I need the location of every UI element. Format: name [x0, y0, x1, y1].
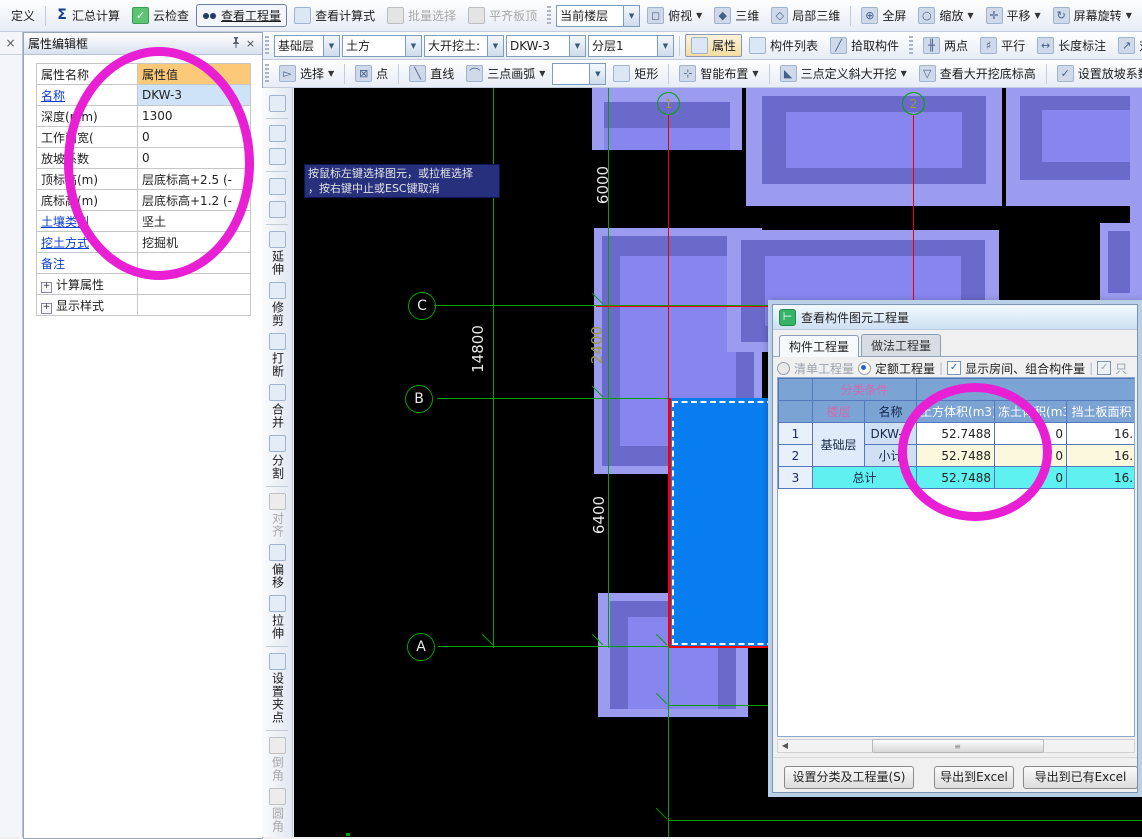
set-classification-button[interactable]: 设置分类及工程量(S): [784, 766, 914, 789]
smart-layout-button[interactable]: ⊹智能布置▼: [674, 63, 763, 84]
split-button[interactable]: 分割: [269, 432, 286, 483]
formula-icon: [294, 7, 311, 24]
red-axis-line-horizontal: [596, 306, 768, 307]
align-slab-icon: [468, 7, 485, 24]
list-icon: [749, 37, 766, 54]
pan-button[interactable]: ✛平移▼: [981, 5, 1046, 26]
rect-button[interactable]: 矩形: [608, 63, 663, 84]
dialog-frame: ⊢ 查看构件图元工程量 构件工程量 做法工程量 清单工程量 定额工程量 | ✓ …: [772, 304, 1138, 793]
align-button[interactable]: 对齐: [269, 490, 286, 541]
length-dim-icon: ↔: [1037, 37, 1054, 54]
view-bottom-elev-button[interactable]: ▽查看大开挖底标高: [914, 63, 1041, 84]
property-panel-title: 属性编辑框: [28, 35, 228, 52]
grid-mark: [346, 833, 350, 836]
offset-button[interactable]: 偏移: [269, 541, 286, 592]
zoom-button[interactable]: ○缩放▼: [913, 5, 978, 26]
radio-quota-label: 定额工程量: [875, 360, 935, 377]
arc-option-combo[interactable]: ▼: [552, 63, 606, 85]
selection-hint-tooltip: 按鼠标左键选择图元，或拉框选择 ，按右键中止或ESC键取消: [304, 164, 500, 198]
divider: [266, 646, 288, 647]
red-axis-line-2: [913, 114, 914, 300]
table-row[interactable]: 1 基础层 DKW-3 52.7488 0 16.: [779, 423, 1136, 445]
sum-calc-button[interactable]: Σ汇总计算: [51, 5, 125, 26]
brush-icon: [269, 95, 286, 112]
point-icon: ⊠: [355, 65, 372, 82]
toolbar-handle: [547, 6, 551, 26]
batch-select-button[interactable]: 批量选择: [382, 5, 461, 26]
chevron-down-icon[interactable]: ▼: [623, 6, 639, 26]
edit-tool-column: 延伸 修剪 打断 合并 分割 对齐 偏移 拉伸 设置夹点 倒角 圆角: [262, 88, 293, 837]
stretch-icon: [269, 595, 286, 612]
mirror-icon: [269, 148, 286, 165]
cell-subtotal-label: 小计: [865, 445, 917, 467]
trim-icon: [269, 282, 286, 299]
bottom-elev-icon: ▽: [919, 65, 936, 82]
smart-layout-icon: ⊹: [679, 65, 696, 82]
arc3-button[interactable]: ⌒三点画弧▼: [461, 63, 550, 84]
rotate-icon: ↻: [1053, 7, 1070, 24]
break-icon: [269, 333, 286, 350]
line-button[interactable]: ╲直线: [404, 63, 459, 84]
cell-frozen-volume: 0: [995, 423, 1067, 445]
pit-edge: [1130, 88, 1142, 298]
dimension-2400: 2400: [588, 326, 606, 364]
scrollbar-thumb[interactable]: ≡: [872, 739, 1044, 753]
chamfer-icon: [269, 737, 286, 754]
chevron-down-icon[interactable]: ▼: [323, 36, 339, 56]
mirror-button[interactable]: [269, 145, 286, 168]
property-table: 属性名称 属性值 名称DKW-3 深度(mm)1300 工作面宽(0 放坡系数0…: [36, 63, 251, 316]
quantity-table: 分类条件 楼层 名称 土方体积(m3) 冻土体积(m3) 挡土板面积 1 基础层…: [778, 378, 1135, 489]
cell-floor: 基础层: [813, 423, 865, 467]
quantity-table-panel: 分类条件 楼层 名称 土方体积(m3) 冻土体积(m3) 挡土板面积 1 基础层…: [777, 377, 1135, 737]
col-header-floor[interactable]: 楼层: [813, 401, 865, 423]
checkbox-show-room-label: 显示房间、组合构件量: [965, 360, 1085, 377]
divider: [266, 730, 288, 731]
property-col-header: 属性名称: [37, 64, 138, 85]
dialog-titlebar[interactable]: ⊢ 查看构件图元工程量: [773, 305, 1137, 330]
prop-slope-label: 放坡系数: [37, 148, 138, 169]
copy-icon: [269, 125, 286, 142]
cell-retaining-area: 16.: [1067, 423, 1135, 445]
close-icon[interactable]: ×: [3, 36, 18, 51]
checkbox-show-room[interactable]: ✓: [947, 361, 961, 375]
full-screen-icon: ⊕: [861, 7, 878, 24]
prop-topelev-value[interactable]: 层底标高+2.5 (-: [138, 169, 251, 190]
prop-digmode-value[interactable]: 挖掘机: [138, 232, 251, 253]
horizontal-scrollbar[interactable]: ◀ ≡: [777, 739, 1135, 753]
rect-icon: [613, 65, 630, 82]
property-editor-panel: 属性编辑框 × 属性名称 属性值 名称DKW-3 深度(mm)1300 工作面宽…: [23, 32, 263, 839]
divider: [266, 118, 288, 119]
tooltip-line2: ，按右键中止或ESC键取消: [308, 181, 496, 196]
category-combo[interactable]: 土方▼: [342, 35, 422, 57]
prop-name-label: 名称: [37, 85, 138, 106]
divider: [266, 171, 288, 172]
pit-inner: [786, 112, 962, 168]
chevron-down-icon[interactable]: ▼: [487, 36, 503, 56]
tooltip-line1: 按鼠标左键选择图元，或拉框选择: [308, 166, 496, 181]
separator: [1046, 64, 1047, 84]
prop-slope-value[interactable]: 0: [138, 148, 251, 169]
arc-icon: ⌒: [466, 65, 483, 82]
separator: [769, 64, 770, 84]
top-view-button[interactable]: ◻俯视▼: [642, 5, 707, 26]
prop-digmode-label: 挖土方式: [37, 232, 138, 253]
cell-earth-volume: 52.7488: [917, 423, 995, 445]
prop-depth-label: 深度(mm): [37, 106, 138, 127]
col-header-v2[interactable]: 冻土体积(m3): [995, 401, 1067, 423]
parallel-icon: ♯: [980, 37, 997, 54]
dock-strip: ×: [0, 32, 23, 837]
cell-earth-volume: 52.7488: [917, 467, 995, 489]
fillet-icon: [269, 788, 286, 805]
col-header-name[interactable]: 名称: [865, 401, 917, 423]
row-index: 2: [779, 445, 813, 467]
type-combo[interactable]: 大开挖土:▼: [424, 35, 504, 57]
expand-icon[interactable]: +: [41, 303, 52, 314]
cloud-check-button[interactable]: ✓云检查: [127, 5, 194, 26]
copy-button[interactable]: [269, 122, 286, 145]
separator: [850, 6, 851, 26]
rotate-button[interactable]: [269, 198, 286, 221]
dialog-button-row: 设置分类及工程量(S) 导出到Excel 导出到已有Excel: [773, 757, 1137, 796]
element-toolbar: 基础层▼ 土方▼ 大开挖土:▼ DKW-3▼ 分层1▼ 属性 构件列表 ╱拾取构…: [262, 32, 1142, 60]
cell-retaining-area: 16.: [1067, 445, 1135, 467]
parallel-button[interactable]: ♯平行: [975, 35, 1030, 56]
grid-line-horizontal: [668, 820, 1142, 821]
grips-icon: [269, 653, 286, 670]
full-screen-button[interactable]: ⊕全屏: [856, 5, 911, 26]
current-floor-combo[interactable]: 当前楼层▼: [556, 5, 640, 27]
expand-icon[interactable]: +: [41, 282, 52, 293]
col-header-v1[interactable]: 土方体积(m3): [917, 401, 995, 423]
axis-bubble-2[interactable]: 2: [902, 92, 925, 115]
view-formula-button[interactable]: 查看计算式: [289, 5, 380, 26]
tab-method-quantity[interactable]: 做法工程量: [861, 334, 941, 356]
axis-bubble-C[interactable]: C: [408, 292, 436, 320]
radio-quota-quantity[interactable]: [858, 362, 871, 375]
pit-inner: [1042, 110, 1142, 162]
property-value-header: 属性值: [138, 64, 251, 85]
separator: [668, 64, 669, 84]
toolbar-handle: [265, 64, 269, 84]
axis-bubble-B[interactable]: B: [405, 385, 433, 413]
view-quantity-dialog: ⊢ 查看构件图元工程量 构件工程量 做法工程量 清单工程量 定额工程量 | ✓ …: [768, 300, 1142, 797]
extend-icon: [269, 231, 286, 248]
dialog-title: 查看构件图元工程量: [801, 309, 909, 326]
prop-workwidth-label: 工作面宽(: [37, 127, 138, 148]
chamfer-button[interactable]: 倒角: [269, 734, 286, 785]
attribute-icon: [691, 37, 708, 54]
axis-tick: [482, 634, 493, 645]
format-brush-button[interactable]: [269, 92, 286, 115]
group-header: 分类条件: [813, 379, 917, 401]
align-icon: [269, 493, 286, 510]
chevron-down-icon[interactable]: ▼: [569, 36, 585, 56]
row-index: 3: [779, 467, 813, 489]
offset-icon: [269, 544, 286, 561]
trim-button[interactable]: 修剪: [269, 279, 286, 330]
prop-depth-value[interactable]: 1300: [138, 106, 251, 127]
cell-name: DKW-3: [865, 423, 917, 445]
empty-cell: [138, 274, 251, 295]
set-grips-button[interactable]: 设置夹点: [269, 650, 286, 727]
floor-combo[interactable]: 基础层▼: [274, 35, 340, 57]
dialog-tabs: 构件工程量 做法工程量: [773, 330, 1137, 357]
partial-3d-icon: ◇: [771, 7, 788, 24]
cell-frozen-volume: 0: [995, 445, 1067, 467]
line-icon: ╲: [409, 65, 426, 82]
separator: [344, 64, 345, 84]
separator: [679, 36, 680, 56]
layer-combo[interactable]: 分层1▼: [588, 35, 674, 57]
magnifier-icon: ○: [918, 7, 935, 24]
cell-retaining-area: 16.: [1067, 467, 1135, 489]
group-calc-props[interactable]: +计算属性: [37, 274, 138, 295]
divider: [0, 54, 22, 55]
dimension-14800: 14800: [469, 325, 487, 373]
cube-icon: ◻: [647, 7, 664, 24]
scroll-left-icon[interactable]: ◀: [778, 740, 792, 752]
prop-workwidth-value[interactable]: 0: [138, 127, 251, 148]
prop-botelev-label: 底标高(m): [37, 190, 138, 211]
header-blank: [917, 379, 1135, 401]
separator: [45, 6, 46, 26]
chevron-down-icon[interactable]: ▼: [589, 64, 605, 84]
col-header-v3[interactable]: 挡土板面积: [1067, 401, 1135, 423]
slope-icon: ◣: [780, 65, 797, 82]
define-button[interactable]: 定义: [6, 5, 40, 26]
prop-remark-label: 备注: [37, 253, 138, 274]
batch-select-icon: [387, 7, 404, 24]
export-existing-excel-button[interactable]: 导出到已有Excel: [1023, 766, 1138, 789]
export-excel-button[interactable]: 导出到Excel: [934, 766, 1014, 789]
dropper-icon: ╱: [830, 37, 847, 54]
point-button[interactable]: ⊠点: [350, 63, 393, 84]
pick-element-button[interactable]: ╱拾取构件: [825, 35, 904, 56]
cell-earth-volume: 52.7488: [917, 445, 995, 467]
prop-name-value[interactable]: DKW-3: [138, 85, 251, 106]
group-display-style[interactable]: +显示样式: [37, 295, 138, 316]
cell-total-label: 总计: [813, 467, 917, 489]
attribute-button[interactable]: 属性: [685, 34, 742, 57]
checkbox-only-label: 只: [1115, 360, 1127, 377]
hand-icon: ✛: [986, 7, 1003, 24]
merge-icon: [269, 384, 286, 401]
extend-button[interactable]: 延伸: [269, 228, 286, 279]
two-points-icon: ╫: [923, 37, 940, 54]
separator: [398, 64, 399, 84]
break-button[interactable]: 打断: [269, 330, 286, 381]
three-d-icon: ◆: [714, 7, 731, 24]
main-toolbar: 定义 Σ汇总计算 ✓云检查 查看工程量 查看计算式 批量选择 平齐板顶 当前楼层…: [0, 0, 1142, 32]
axis-tick: [656, 808, 667, 819]
cloud-check-icon: ✓: [132, 7, 149, 24]
element-list-button[interactable]: 构件列表: [744, 35, 823, 56]
selected-pit-element[interactable]: [669, 398, 776, 648]
align-dim-button[interactable]: ↗对齐标注: [1113, 35, 1142, 56]
toolbar-handle: [909, 36, 913, 56]
set-slope-icon: ✓: [1057, 65, 1074, 82]
divider: [266, 224, 288, 225]
prop-remark-value[interactable]: [138, 253, 251, 274]
chevron-down-icon[interactable]: ▼: [405, 36, 421, 56]
two-points-button[interactable]: ╫两点: [918, 35, 973, 56]
dimension-6000: 6000: [594, 166, 612, 204]
pin-icon[interactable]: [228, 37, 243, 51]
chevron-down-icon[interactable]: ▼: [657, 36, 673, 56]
move-button[interactable]: [269, 175, 286, 198]
draw-toolbar: ▻选择▼ ⊠点 ╲直线 ⌒三点画弧▼ ▼ 矩形 ⊹智能布置▼ ◣三点定义斜大开挖…: [262, 60, 1142, 88]
three-d-button[interactable]: ◆三维: [709, 5, 764, 26]
sigma-icon: Σ: [56, 8, 68, 23]
split-icon: [269, 435, 286, 452]
toolbar-handle: [265, 36, 269, 56]
align-slab-top-button[interactable]: 平齐板顶: [463, 5, 542, 26]
name-combo[interactable]: DKW-3▼: [506, 35, 586, 57]
header-corner2: [779, 401, 813, 423]
move-icon: [269, 178, 286, 195]
slope3-button[interactable]: ◣三点定义斜大开挖▼: [775, 63, 912, 84]
select-button[interactable]: ▻选择▼: [274, 63, 339, 84]
dialog-options-row: 清单工程量 定额工程量 | ✓ 显示房间、组合构件量 | ✓ 只: [773, 357, 1137, 379]
screen-rotate-button[interactable]: ↻屏幕旋转▼: [1048, 5, 1137, 26]
property-panel-titlebar[interactable]: 属性编辑框 ×: [24, 33, 262, 55]
row-index: 1: [779, 423, 813, 445]
prop-soil-value[interactable]: 坚土: [138, 211, 251, 232]
close-icon[interactable]: ×: [243, 37, 258, 51]
fillet-button[interactable]: 圆角: [269, 785, 286, 836]
cursor-icon: ▻: [279, 65, 296, 82]
axis-bubble-A[interactable]: A: [407, 633, 435, 661]
align-dim-icon: ↗: [1118, 37, 1135, 54]
dimension-6400: 6400: [590, 496, 608, 534]
view-quantity-button[interactable]: 查看工程量: [196, 4, 287, 27]
prop-topelev-label: 顶标高(m): [37, 169, 138, 190]
stretch-button[interactable]: 拉伸: [269, 592, 286, 643]
divider: [266, 486, 288, 487]
checkbox-only[interactable]: ✓: [1097, 361, 1111, 375]
set-slope-button[interactable]: ✓设置放坡系数▼: [1052, 63, 1142, 84]
empty-cell: [138, 295, 251, 316]
prop-botelev-value[interactable]: 层底标高+1.2 (-: [138, 190, 251, 211]
radio-list-quantity[interactable]: [777, 362, 790, 375]
merge-button[interactable]: 合并: [269, 381, 286, 432]
dialog-icon: ⊢: [779, 309, 796, 326]
tab-element-quantity[interactable]: 构件工程量: [779, 335, 859, 357]
prop-soil-label: 土壤类别: [37, 211, 138, 232]
axis-bubble-1[interactable]: 1: [657, 92, 680, 115]
glasses-icon: [202, 8, 217, 23]
partial-3d-button[interactable]: ◇局部三维: [766, 5, 845, 26]
cell-frozen-volume: 0: [995, 467, 1067, 489]
rotate-icon: [269, 201, 286, 218]
table-row-total[interactable]: 3 总计 52.7488 0 16.: [779, 467, 1136, 489]
header-corner: [779, 379, 813, 401]
radio-list-label: 清单工程量: [794, 360, 854, 377]
length-dim-button[interactable]: ↔长度标注: [1032, 35, 1111, 56]
pit-inner: [604, 128, 730, 150]
